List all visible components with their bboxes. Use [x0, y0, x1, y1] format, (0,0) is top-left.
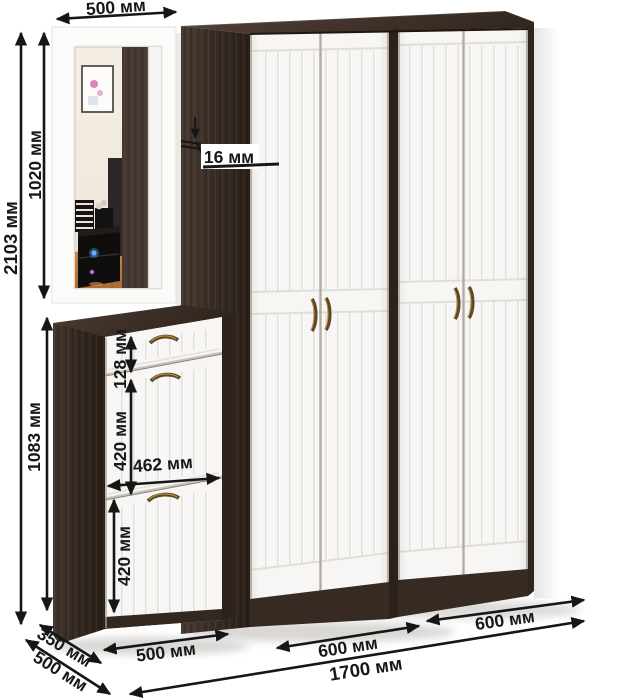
- wall-shadow-right: [534, 28, 560, 598]
- dim-label-inner-width: 462 мм: [132, 452, 193, 476]
- dim-label-mirror-height: 1020 мм: [25, 130, 45, 200]
- scene: 500 мм 2103 мм 1020 мм 1083 мм 16 мм 128…: [0, 0, 637, 700]
- dim-label-total-height: 2103 мм: [0, 201, 21, 275]
- dim-label-cabinet-height: 1083 мм: [24, 402, 44, 472]
- cabinet-right-edge: [222, 313, 236, 620]
- reflected-black-chest: [78, 226, 120, 288]
- cabinet-side-grain: [53, 323, 105, 642]
- mirror-wall-shadow: [176, 33, 181, 305]
- product-dimension-image: 500 мм 2103 мм 1020 мм 1083 мм 16 мм 128…: [0, 0, 637, 700]
- dim-label-upper-flap: 420 мм: [110, 411, 130, 471]
- reflected-picture-frame: [82, 66, 113, 112]
- dim-label-drawer-height: 128 мм: [110, 329, 130, 389]
- mirror: [52, 27, 181, 305]
- dim-label-mirror-width: 500 мм: [85, 0, 146, 19]
- wardrobe-divider: [389, 28, 398, 619]
- right-wardrobe-doors: [398, 24, 528, 585]
- wardrobe-right-edge: [528, 22, 534, 596]
- left-wardrobe-doors: [250, 28, 389, 603]
- dim-label-lower-flap: 420 мм: [114, 526, 134, 586]
- dim-label-panel-thickness: 16 мм: [204, 147, 254, 167]
- reflected-frame-strip: [148, 47, 161, 288]
